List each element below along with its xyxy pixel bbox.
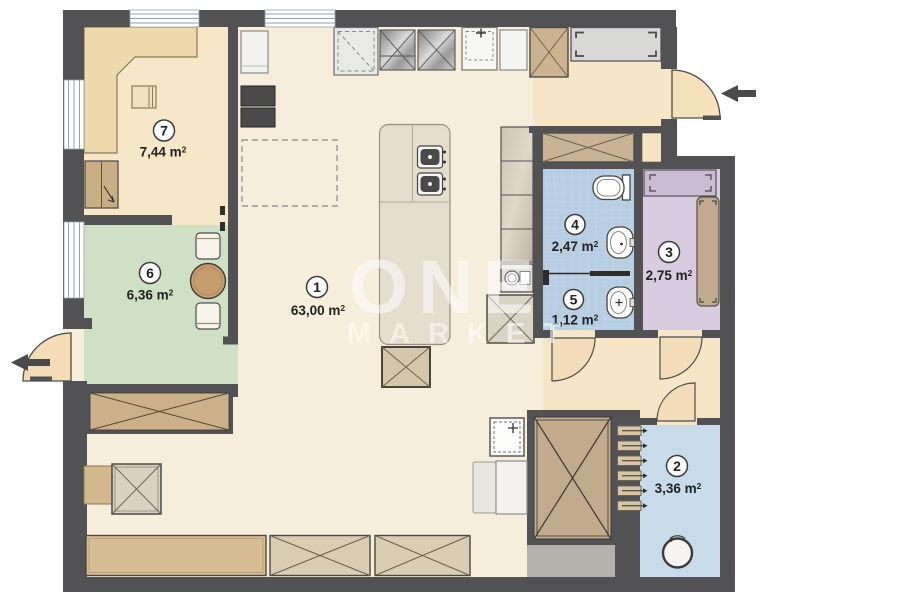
svg-text:2,47 m2: 2,47 m2	[552, 239, 599, 254]
svg-text:MARKET: MARKET	[347, 318, 579, 350]
svg-text:3,36 m2: 3,36 m2	[655, 481, 702, 496]
svg-text:6: 6	[146, 265, 154, 281]
svg-text:2: 2	[673, 458, 681, 474]
svg-text:63,00 m2: 63,00 m2	[291, 303, 346, 318]
svg-text:6,36 m2: 6,36 m2	[127, 288, 174, 303]
svg-text:4: 4	[571, 217, 579, 233]
svg-text:7: 7	[160, 123, 168, 139]
svg-text:3: 3	[665, 244, 673, 260]
svg-text:7,44 m2: 7,44 m2	[140, 145, 187, 160]
svg-text:5: 5	[570, 292, 578, 308]
svg-text:2,75 m2: 2,75 m2	[646, 268, 693, 283]
svg-text:1: 1	[313, 279, 321, 295]
